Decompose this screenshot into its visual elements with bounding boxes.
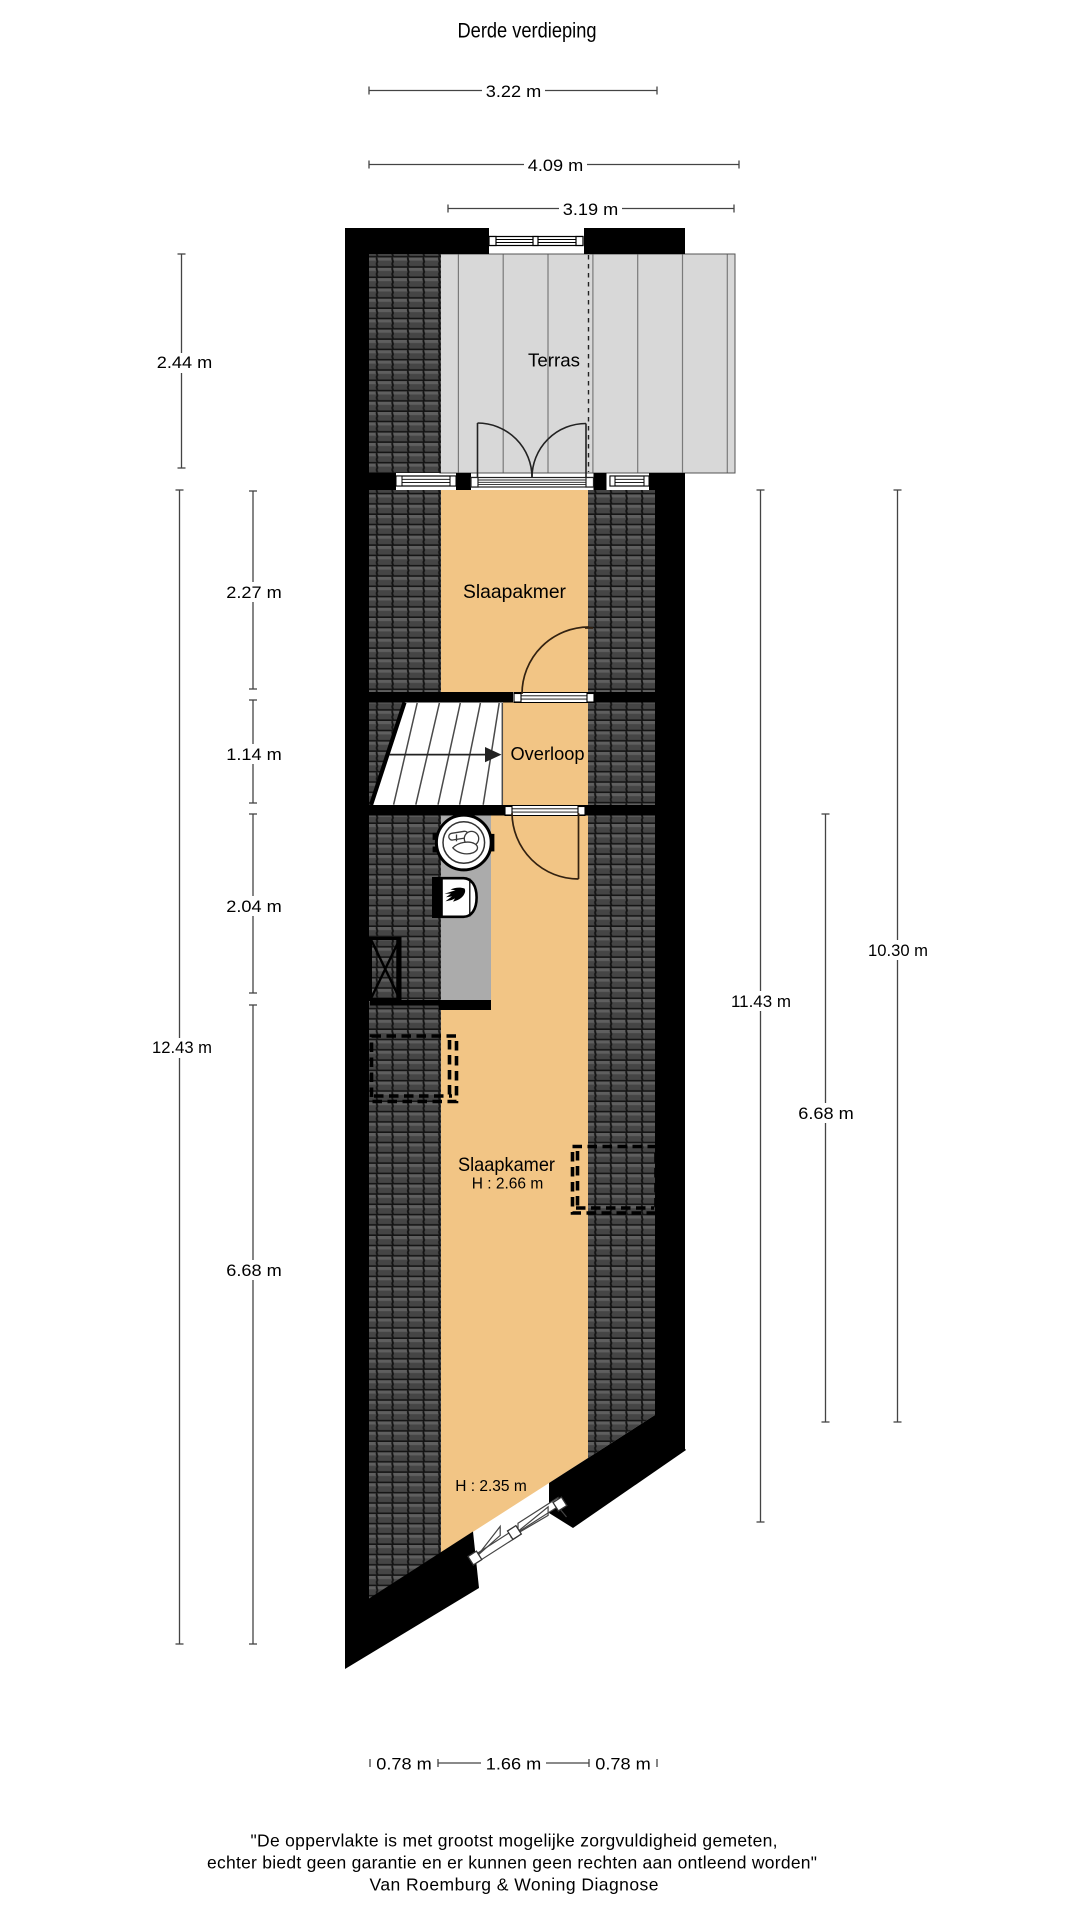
svg-text:2.27 m: 2.27 m: [226, 583, 282, 602]
svg-text:2.44 m: 2.44 m: [157, 353, 213, 372]
svg-text:H : 2.35 m: H : 2.35 m: [455, 1478, 527, 1495]
svg-text:H : 2.66 m: H : 2.66 m: [472, 1176, 544, 1193]
svg-text:2.04 m: 2.04 m: [226, 897, 282, 916]
svg-text:10.30 m: 10.30 m: [868, 941, 928, 960]
svg-text:Terras: Terras: [528, 350, 580, 371]
svg-text:3.19 m: 3.19 m: [563, 200, 619, 219]
svg-text:3.22 m: 3.22 m: [486, 82, 542, 101]
svg-text:1.14 m: 1.14 m: [226, 745, 282, 764]
svg-text:11.43 m: 11.43 m: [731, 992, 791, 1011]
svg-text:6.68 m: 6.68 m: [798, 1104, 854, 1123]
svg-text:Overloop: Overloop: [511, 743, 585, 764]
svg-text:4.09 m: 4.09 m: [528, 156, 584, 175]
svg-text:Slaapkamer: Slaapkamer: [458, 1154, 555, 1176]
svg-text:Van Roemburg & Woning Diagnose: Van Roemburg & Woning Diagnose: [370, 1875, 659, 1895]
svg-text:0.78 m: 0.78 m: [595, 1755, 651, 1774]
svg-text:0.78 m: 0.78 m: [376, 1755, 432, 1774]
svg-text:Derde verdieping: Derde verdieping: [458, 20, 597, 43]
svg-text:Slaapakmer: Slaapakmer: [463, 581, 566, 603]
svg-text:1.66 m: 1.66 m: [486, 1755, 542, 1774]
svg-text:"De oppervlakte is met grootst: "De oppervlakte is met grootst mogelijke…: [251, 1831, 778, 1851]
svg-text:echter biedt geen garantie en: echter biedt geen garantie en er kunnen …: [207, 1853, 817, 1873]
svg-text:6.68 m: 6.68 m: [226, 1261, 282, 1280]
svg-text:12.43 m: 12.43 m: [152, 1038, 212, 1057]
